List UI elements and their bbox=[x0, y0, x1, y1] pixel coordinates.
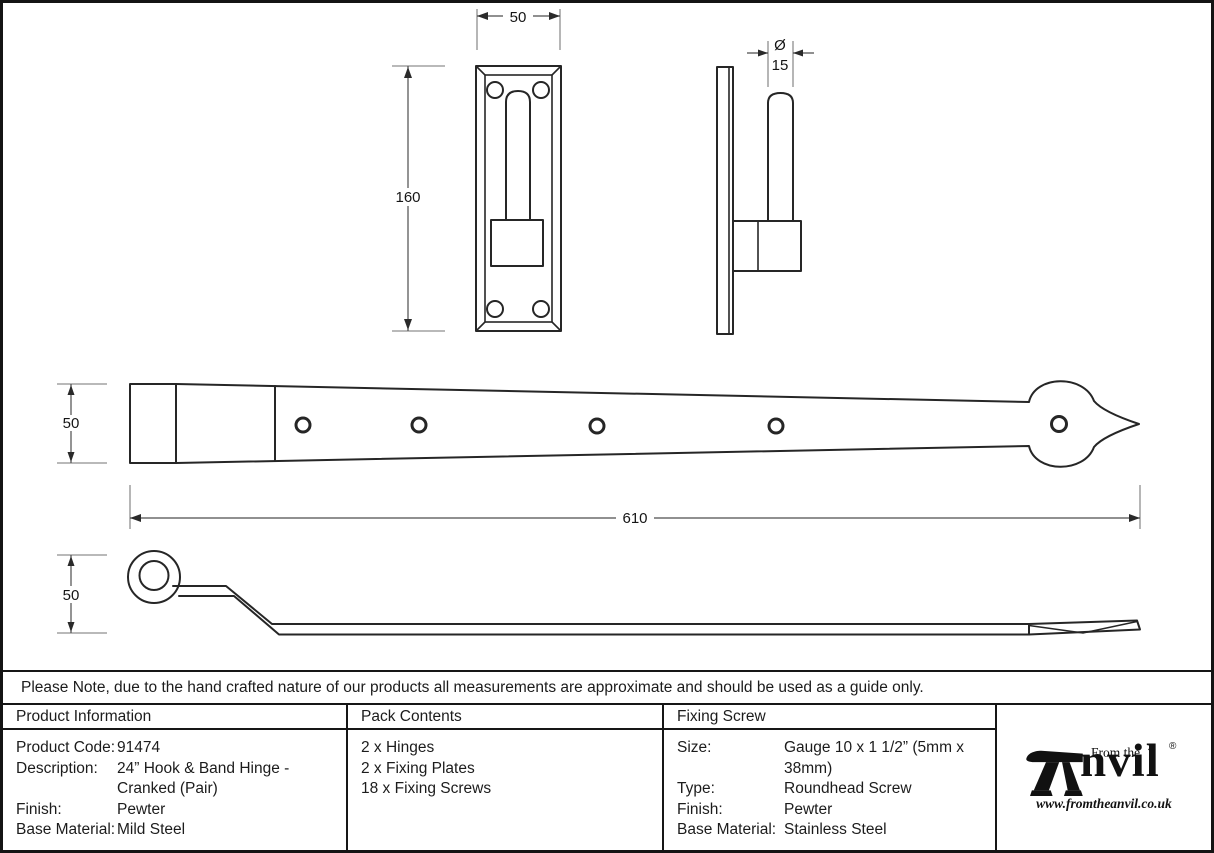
technical-drawing: 50 160 Ø 15 bbox=[3, 3, 1214, 670]
dim-band-length: 610 bbox=[130, 485, 1140, 529]
description-row: Description: 24” Hook & Band Hinge - Cra… bbox=[16, 759, 340, 800]
logo-url: www.fromtheanvil.co.uk bbox=[1026, 796, 1182, 812]
dim-band-length-label: 610 bbox=[622, 510, 647, 527]
dim-band-width: 50 bbox=[57, 384, 107, 463]
screw-type-row: Type: Roundhead Screw bbox=[677, 779, 989, 800]
fixing-plate-front-view bbox=[476, 66, 561, 331]
registered-mark: ® bbox=[1169, 741, 1176, 752]
pack-item: 2 x Fixing Plates bbox=[361, 759, 656, 780]
hook-pin-side bbox=[768, 93, 793, 221]
band-hole bbox=[296, 418, 310, 432]
screw-base-material-row: Base Material: Stainless Steel bbox=[677, 820, 989, 841]
dim-plate-height: 160 bbox=[392, 66, 445, 331]
product-information-column: Product Information Product Code: 91474 … bbox=[3, 705, 348, 850]
from-the-anvil-logo: From the ◆ nvil ® www.fromtheanvil.co.uk bbox=[1026, 745, 1182, 811]
fixing-screw-column: Fixing Screw Size: Gauge 10 x 1 1/2” (5m… bbox=[664, 705, 997, 850]
fixing-screw-header: Fixing Screw bbox=[664, 705, 995, 730]
screw-hole bbox=[533, 301, 549, 317]
pack-contents-column: Pack Contents 2 x Hinges 2 x Fixing Plat… bbox=[348, 705, 664, 850]
pack-item: 2 x Hinges bbox=[361, 738, 656, 759]
hook-pin-front bbox=[506, 91, 530, 220]
spec-sheet: 50 160 Ø 15 bbox=[0, 0, 1214, 853]
pin-block-side bbox=[733, 221, 801, 271]
measurement-note: Please Note, due to the hand crafted nat… bbox=[3, 670, 1211, 705]
dim-pin-diameter: Ø 15 bbox=[747, 37, 814, 87]
measurement-note-text: Please Note, due to the hand crafted nat… bbox=[21, 679, 924, 697]
band-outline bbox=[130, 381, 1139, 467]
dim-plate-width: 50 bbox=[477, 8, 560, 50]
product-code-row: Product Code: 91474 bbox=[16, 738, 340, 759]
dim-diameter-symbol: Ø bbox=[774, 37, 786, 54]
screw-size-row: Size: Gauge 10 x 1 1/2” (5mm x 38mm) bbox=[677, 738, 989, 779]
screw-finish-row: Finish: Pewter bbox=[677, 800, 989, 821]
dim-cranked-height: 50 bbox=[57, 555, 107, 633]
spec-footer: Please Note, due to the hand crafted nat… bbox=[3, 670, 1211, 850]
screw-hole bbox=[533, 82, 549, 98]
dim-plate-width-label: 50 bbox=[510, 9, 527, 26]
band-hinge-top-view bbox=[130, 381, 1139, 467]
base-material-row: Base Material: Mild Steel bbox=[16, 820, 340, 841]
band-hinge-side-view bbox=[128, 551, 1140, 635]
band-hole bbox=[590, 419, 604, 433]
dim-plate-height-label: 160 bbox=[395, 189, 420, 206]
fixing-screw-body: Size: Gauge 10 x 1 1/2” (5mm x 38mm) Typ… bbox=[664, 730, 995, 841]
spec-table: Product Information Product Code: 91474 … bbox=[3, 705, 1211, 850]
finish-row: Finish: Pewter bbox=[16, 800, 340, 821]
screw-hole bbox=[487, 301, 503, 317]
product-information-body: Product Code: 91474 Description: 24” Hoo… bbox=[3, 730, 346, 841]
eye-loop-inner bbox=[140, 561, 169, 590]
eye-loop-outer bbox=[128, 551, 180, 603]
dim-cranked-height-label: 50 bbox=[63, 587, 80, 604]
logo-wordmark: nvil bbox=[1080, 734, 1160, 788]
product-information-header: Product Information bbox=[3, 705, 346, 730]
band-hole bbox=[769, 419, 783, 433]
dim-pin-diameter-label: 15 bbox=[772, 57, 789, 74]
screw-hole bbox=[487, 82, 503, 98]
brand-logo-cell: From the ◆ nvil ® www.fromtheanvil.co.uk bbox=[997, 705, 1211, 850]
band-hole bbox=[412, 418, 426, 432]
arrowhead-hole bbox=[1052, 417, 1067, 432]
pack-item: 18 x Fixing Screws bbox=[361, 779, 656, 800]
anvil-icon bbox=[1026, 747, 1083, 796]
pack-contents-header: Pack Contents bbox=[348, 705, 662, 730]
dim-band-width-label: 50 bbox=[63, 415, 80, 432]
pin-block-front bbox=[491, 220, 543, 266]
pack-contents-body: 2 x Hinges 2 x Fixing Plates 18 x Fixing… bbox=[348, 730, 662, 800]
fixing-plate-side-view bbox=[717, 67, 801, 334]
